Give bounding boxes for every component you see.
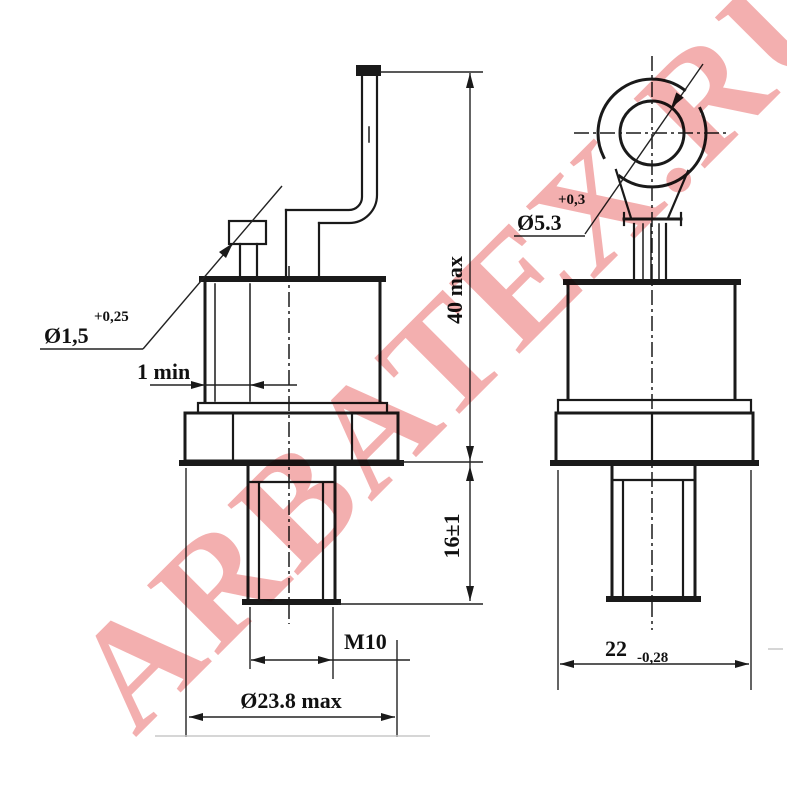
drawing-page: Ø1,5 +0,25 1 min 40 max 16±1 bbox=[0, 0, 787, 787]
dim-stud-length: 16±1 bbox=[338, 466, 483, 604]
right-stud bbox=[609, 466, 698, 599]
technical-drawing-canvas: Ø1,5 +0,25 1 min 40 max 16±1 bbox=[0, 0, 787, 787]
dim-edge-min: 1 min bbox=[137, 359, 297, 389]
flag-terminal-tip bbox=[356, 65, 381, 76]
dim-label-hole-dia: Ø5.3 bbox=[517, 210, 562, 235]
dim-hex-width: 22 -0,28 bbox=[558, 470, 751, 690]
dim-label-hex-width-tol: -0,28 bbox=[637, 650, 668, 666]
dim-label-hex-width: 22 bbox=[605, 636, 627, 661]
gate-terminal bbox=[229, 221, 266, 279]
left-view-dimensions: Ø1,5 +0,25 1 min 40 max 16±1 bbox=[40, 72, 483, 737]
right-view bbox=[553, 56, 756, 630]
right-hex-nut bbox=[553, 413, 756, 463]
dim-thread: M10 bbox=[250, 607, 410, 679]
left-hex-nut bbox=[182, 413, 401, 463]
left-view bbox=[182, 65, 401, 624]
dim-label-stud-length: 16±1 bbox=[439, 513, 464, 558]
dim-label-gate-dia-tol: +0,25 bbox=[94, 309, 129, 325]
left-body-cylinder bbox=[202, 279, 383, 402]
dim-gate-lead-dia: Ø1,5 +0,25 bbox=[40, 186, 282, 349]
dim-label-hole-dia-tol: +0,3 bbox=[558, 192, 585, 208]
dim-overall-height: 40 max bbox=[380, 72, 483, 601]
dim-label-overall-height: 40 max bbox=[442, 256, 467, 324]
right-flange-plate bbox=[558, 400, 751, 413]
dim-label-edge-min: 1 min bbox=[137, 359, 190, 384]
dim-hole-dia: Ø5.3 +0,3 bbox=[514, 64, 703, 236]
left-stud bbox=[245, 466, 338, 602]
flag-terminal bbox=[286, 65, 381, 278]
dim-label-body-dia: Ø23.8 max bbox=[240, 688, 341, 713]
dim-label-gate-dia: Ø1,5 bbox=[44, 323, 89, 348]
dim-label-thread: M10 bbox=[344, 629, 387, 654]
